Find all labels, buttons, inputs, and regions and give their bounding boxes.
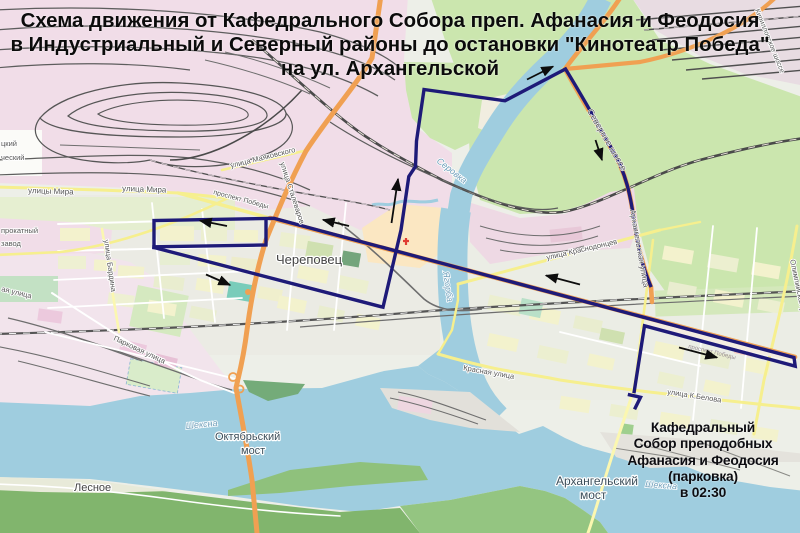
svg-text:Красная улица: Красная улица [463, 363, 516, 381]
svg-text:улица К.Белова: улица К.Белова [667, 387, 723, 405]
svg-text:цкий: цкий [1, 139, 17, 148]
svg-text:улица Краснодонцев: улица Краснодонцев [545, 237, 618, 262]
svg-text:Парковая улица: Парковая улица [112, 334, 167, 366]
svg-text:Октябрьский: Октябрьский [215, 431, 280, 443]
svg-text:Архангельская улица: Архангельская улица [628, 209, 651, 289]
svg-text:улицы Мира: улицы Мира [28, 186, 74, 197]
svg-text:улица Бардина: улица Бардина [102, 239, 118, 293]
svg-text:улица Сталеваров: улица Сталеваров [278, 161, 307, 225]
svg-text:Лесное: Лесное [74, 482, 111, 494]
svg-text:Серовка: Серовка [435, 156, 469, 186]
svg-text:проспект Победы: проспект Победы [212, 188, 269, 210]
svg-text:Ягорба: Ягорба [441, 270, 455, 303]
svg-text:мост: мост [241, 445, 265, 457]
svg-text:Череповец: Череповец [276, 252, 343, 267]
svg-text:ческий: ческий [1, 153, 25, 162]
svg-text:ая улица: ая улица [1, 284, 34, 300]
svg-text:Северное шоссе: Северное шоссе [585, 107, 629, 173]
svg-text:улица Мира: улица Мира [122, 184, 167, 195]
svg-text:Олимпийская ул: Олимпийская ул [788, 259, 800, 317]
svg-text:Шексна: Шексна [185, 418, 218, 431]
svg-text:прокатный: прокатный [1, 226, 38, 235]
svg-text:завод: завод [1, 239, 22, 248]
